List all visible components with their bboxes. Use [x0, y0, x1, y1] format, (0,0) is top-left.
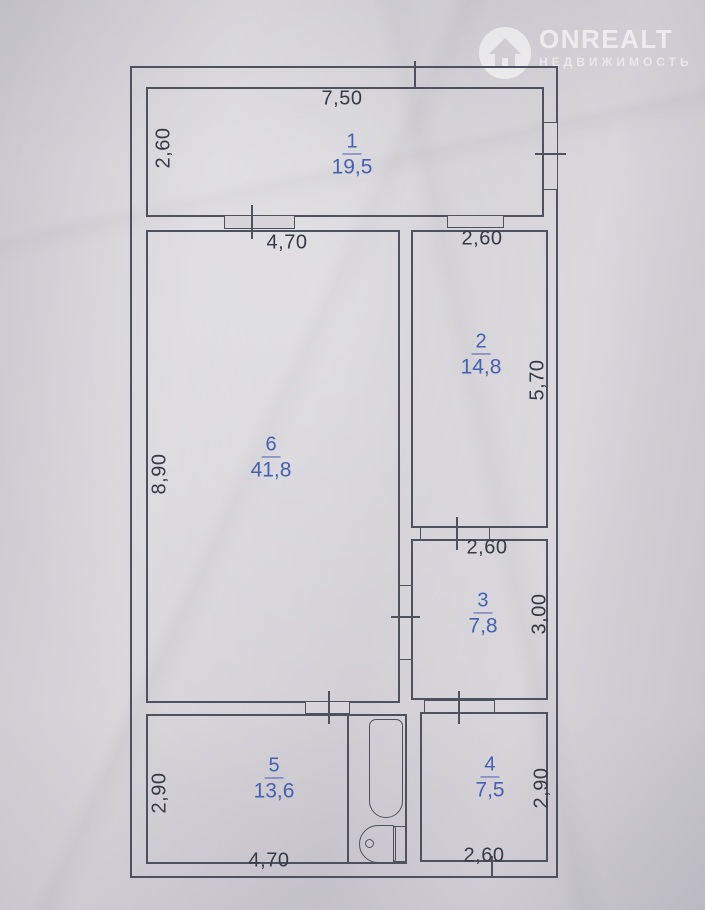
- room-3-number: 3: [473, 590, 492, 613]
- dimension-label-room2-width: 2,60: [462, 228, 503, 251]
- room-1-number: 1: [342, 131, 361, 154]
- dimension-label-room4-width: 2,60: [464, 845, 505, 868]
- dimension-label-room6-width: 4,70: [267, 232, 308, 255]
- room-2-number: 2: [471, 331, 490, 354]
- floor-plan-outline: 7,50 2,60 4,70 2,60 5,70 8,90 2,60 3,00 …: [130, 66, 558, 878]
- dimension-label-room4-height: 2,90: [531, 768, 554, 809]
- room-5-label: 5 13,6: [254, 755, 295, 802]
- dimension-label-room1-width: 7,50: [322, 88, 363, 111]
- window-tick-room1-room6: [251, 205, 253, 239]
- door-tick-room6-room5: [328, 691, 330, 724]
- room-6-number: 6: [261, 434, 280, 457]
- dimension-label-room3-width: 2,60: [467, 537, 508, 560]
- room-5-area: 13,6: [254, 780, 295, 802]
- room-4-number: 4: [480, 754, 499, 777]
- dimension-label-room5-width: 4,70: [249, 850, 290, 873]
- window-room1-right-wall: [543, 122, 558, 190]
- toilet-flush-button: [365, 839, 374, 848]
- bathtub-fixture: [369, 719, 403, 818]
- room-6-area: 41,8: [251, 459, 292, 481]
- window-tick-room1-right-wall: [535, 153, 566, 155]
- door-tick-room3-room4: [458, 691, 460, 724]
- toilet-fixture: [359, 825, 406, 863]
- dimension-label-room5-height: 2,90: [149, 773, 172, 814]
- dimension-label-room3-height: 3,00: [529, 594, 552, 635]
- door-tick-room6-room3: [391, 616, 420, 618]
- room-2-area: 14,8: [461, 356, 502, 378]
- room-1-label: 1 19,5: [332, 131, 373, 178]
- toilet-tank: [393, 826, 406, 862]
- dimension-label-room1-height: 2,60: [153, 128, 176, 169]
- room-4-area: 7,5: [475, 779, 504, 801]
- watermark-subtitle: НЕДВИЖИМОСТЬ: [539, 55, 693, 69]
- room-1-area: 19,5: [332, 156, 373, 178]
- door-opening-room6-room3: [399, 585, 412, 660]
- dimension-label-room2-height: 5,70: [527, 360, 550, 401]
- dimension-label-room6-height: 8,90: [149, 454, 172, 495]
- dimension-tick-top-wall: [414, 61, 416, 87]
- room-5-number: 5: [264, 755, 283, 778]
- window-tick-room2-room3: [456, 517, 458, 550]
- window-symbol-room1-room6: [224, 215, 295, 229]
- room-6-label: 6 41,8: [251, 434, 292, 481]
- watermark-brand: ONREALT: [539, 26, 693, 52]
- bathroom-partition-wall: [347, 714, 349, 864]
- room-3-area: 7,8: [468, 615, 497, 637]
- scanned-floor-plan-photo: { "watermark": { "brand": "ONREALT", "su…: [0, 0, 705, 910]
- room-4-label: 4 7,5: [475, 754, 504, 801]
- room-2-label: 2 14,8: [461, 331, 502, 378]
- room-3-label: 3 7,8: [468, 590, 497, 637]
- door-opening-room1-room2: [447, 215, 504, 228]
